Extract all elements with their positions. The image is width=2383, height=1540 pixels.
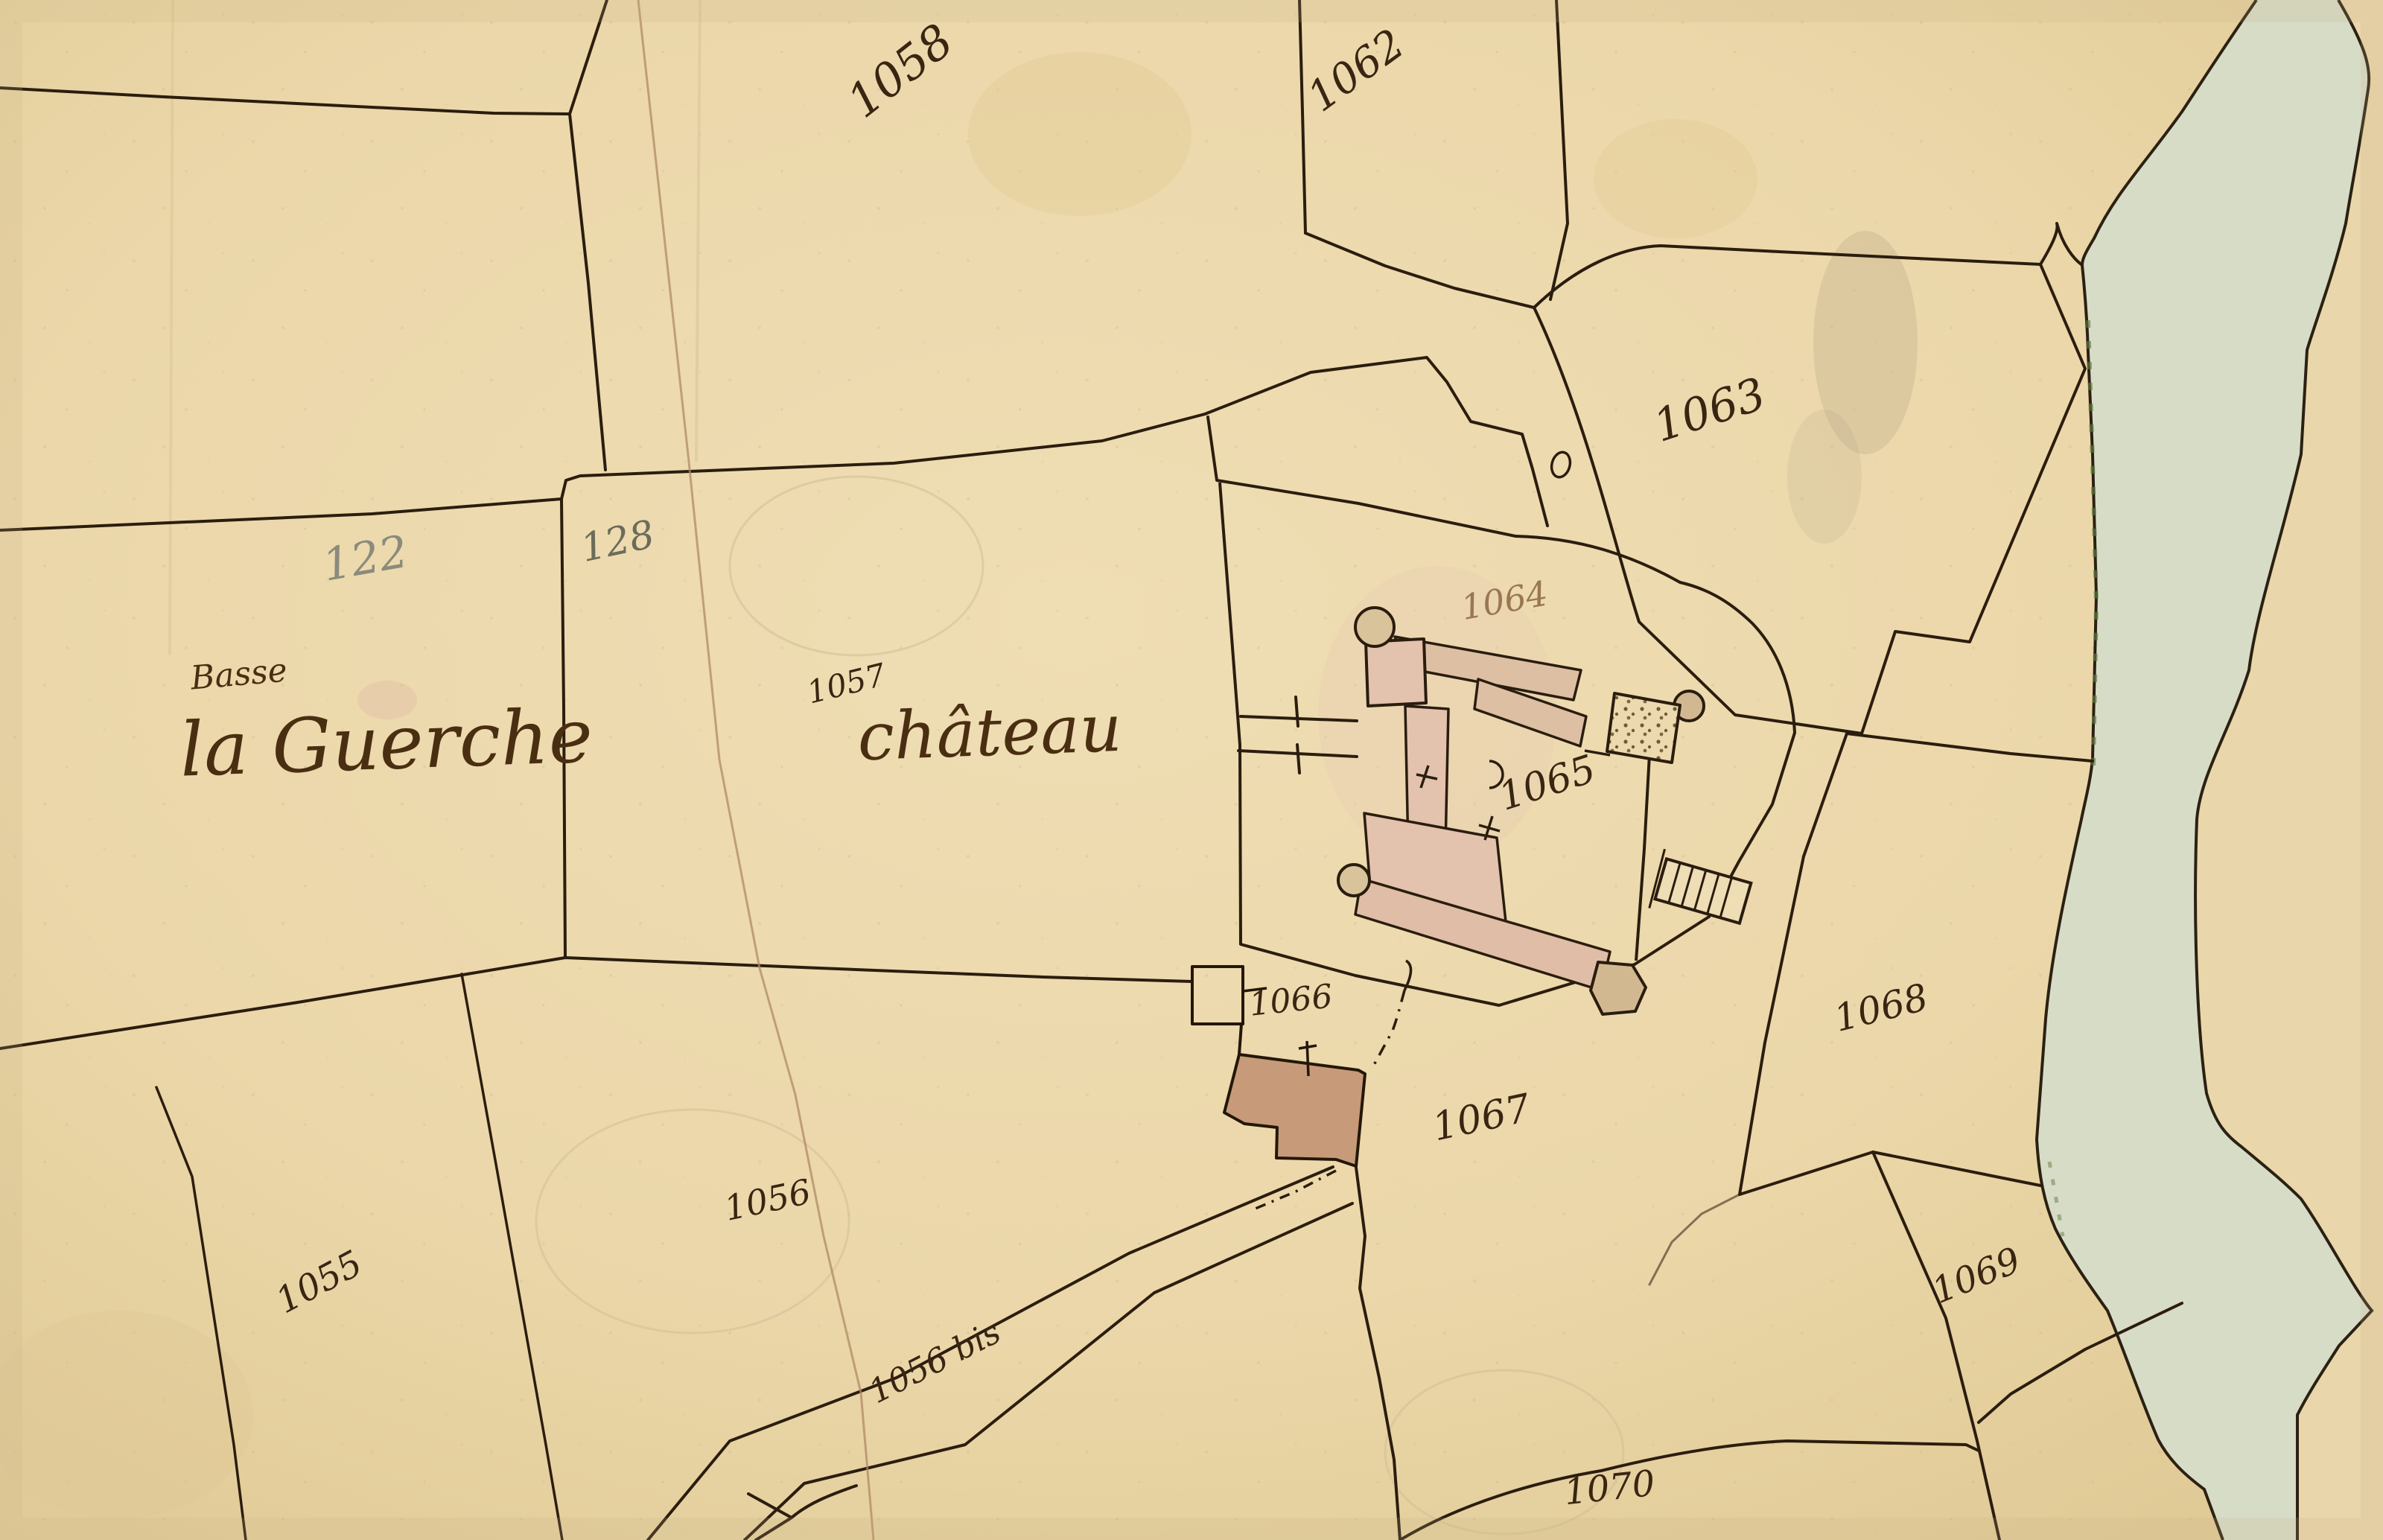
map-scan: 105810621063122128Bassela Guerchechâteau… [0, 0, 2383, 1540]
sw-turret [1338, 865, 1369, 896]
map-canvas: 105810621063122128Bassela Guerchechâteau… [0, 0, 2383, 1540]
nw-turret [1355, 608, 1394, 646]
ruin-speckled-plot [1607, 693, 1680, 763]
keep-tower-square [1366, 639, 1426, 706]
lieu-la-guerche-label: la Guerche [179, 692, 594, 793]
lieu-chateau-label: château [856, 690, 1123, 775]
